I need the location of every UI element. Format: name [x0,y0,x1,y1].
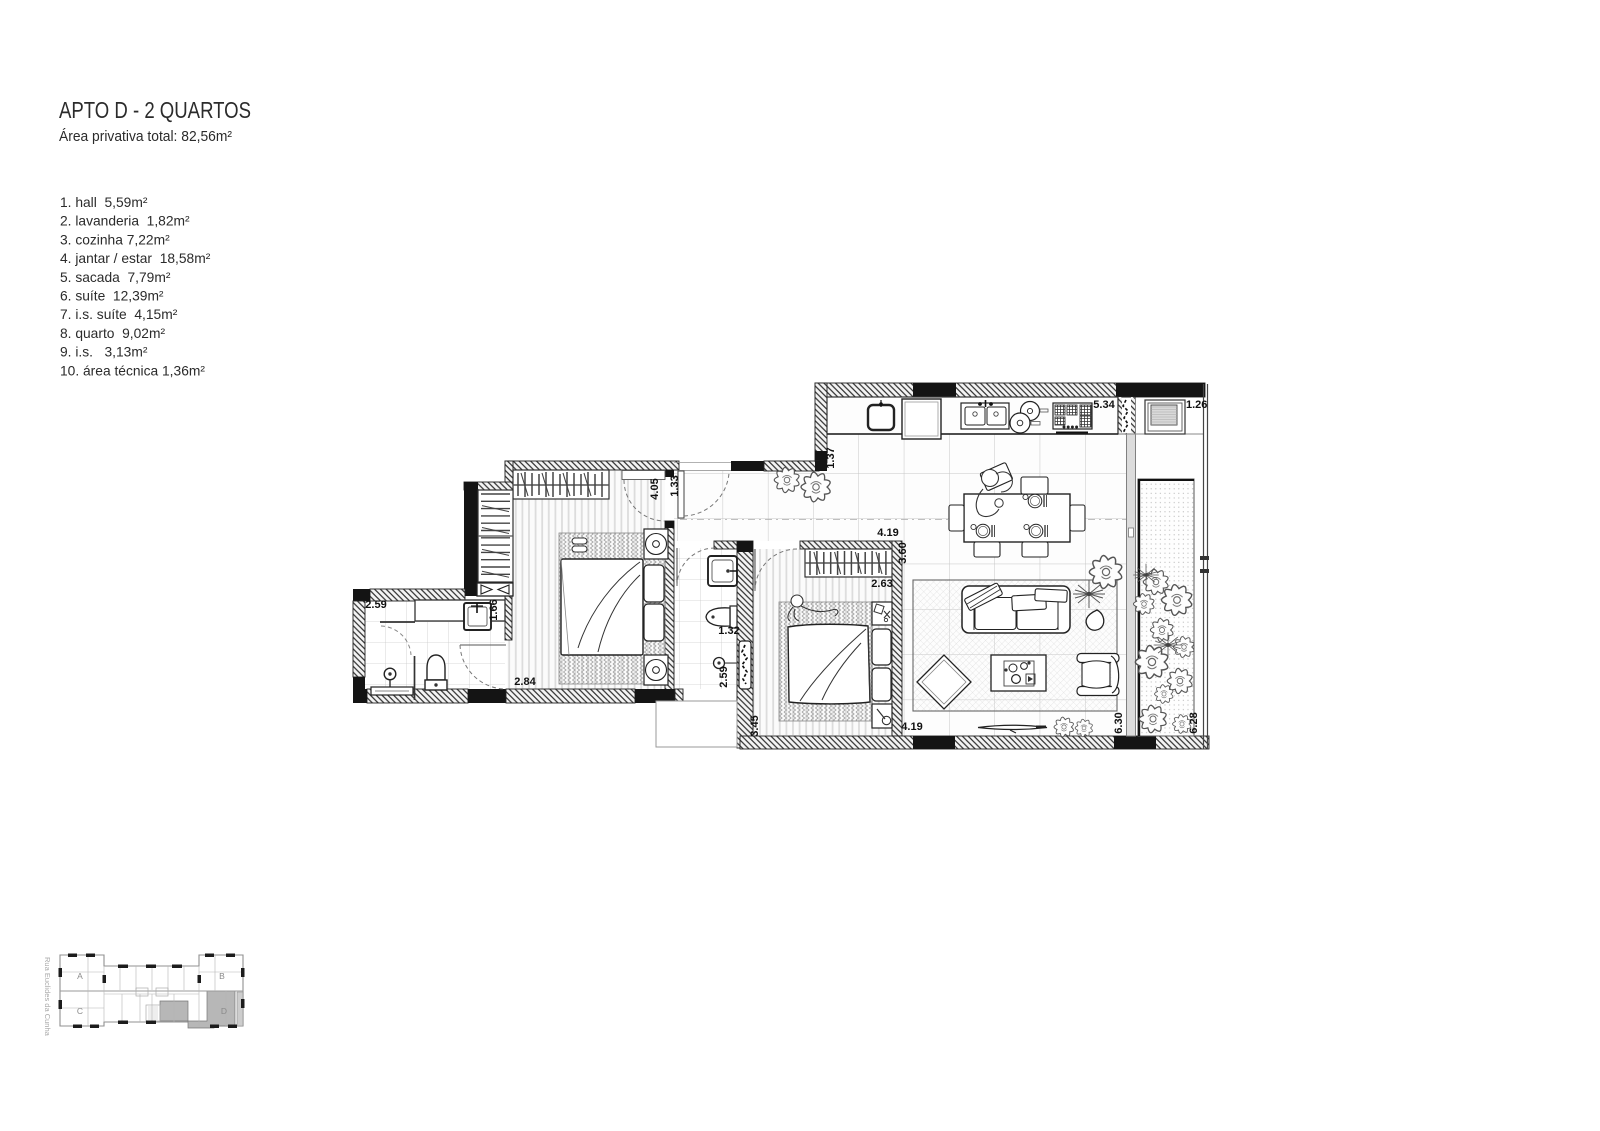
svg-text:2.84: 2.84 [514,676,536,688]
svg-text:Rua Euclides da Cunha: Rua Euclides da Cunha [43,957,52,1037]
svg-text:D: D [221,1006,227,1016]
svg-text:A: A [77,971,83,981]
svg-text:5.34: 5.34 [1093,399,1115,411]
svg-text:6.30: 6.30 [1113,712,1125,733]
svg-text:7. i.s. suíte 4,15m²: 7. i.s. suíte 4,15m² [60,307,178,322]
svg-text:Área privativa total: 82,56m²: Área privativa total: 82,56m² [59,128,232,145]
svg-text:9. i.s. 3,13m²: 9. i.s. 3,13m² [60,345,148,360]
svg-text:5. sacada 7,79m²: 5. sacada 7,79m² [60,270,171,285]
svg-text:10. área técnica 1,36m²: 10. área técnica 1,36m² [60,363,205,378]
svg-text:1.32: 1.32 [718,625,739,637]
svg-text:1.26: 1.26 [1186,399,1207,411]
svg-text:1. hall 5,59m²: 1. hall 5,59m² [60,195,148,210]
svg-text:APTO D - 2 QUARTOS: APTO D - 2 QUARTOS [59,97,251,123]
svg-text:1.66: 1.66 [488,599,500,620]
svg-text:2.59: 2.59 [718,666,730,687]
svg-text:3.45: 3.45 [749,715,761,736]
svg-text:1.33: 1.33 [669,475,681,496]
svg-text:2. lavanderia 1,82m²: 2. lavanderia 1,82m² [60,214,190,229]
svg-text:1.37: 1.37 [825,447,837,468]
svg-text:B: B [219,971,225,981]
svg-text:8. quarto 9,02m²: 8. quarto 9,02m² [60,326,165,341]
svg-text:4.19: 4.19 [901,721,922,733]
svg-text:6.28: 6.28 [1188,712,1200,733]
svg-text:3. cozinha 7,22m²: 3. cozinha 7,22m² [60,232,170,247]
svg-text:3.60: 3.60 [897,542,909,563]
svg-text:4.19: 4.19 [877,527,898,539]
svg-text:4.05: 4.05 [649,478,661,499]
svg-text:2.59: 2.59 [365,599,386,611]
svg-text:4. jantar / estar 18,58m²: 4. jantar / estar 18,58m² [60,251,211,266]
svg-text:6. suíte 12,39m²: 6. suíte 12,39m² [60,289,164,304]
svg-text:2.63: 2.63 [871,578,892,590]
svg-text:C: C [77,1006,83,1016]
